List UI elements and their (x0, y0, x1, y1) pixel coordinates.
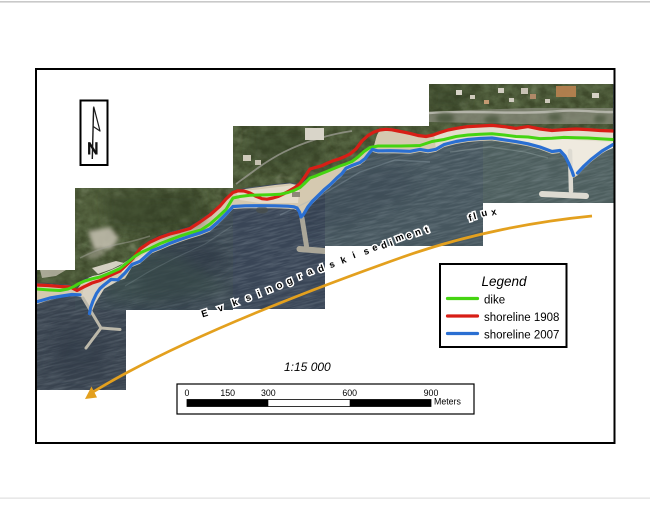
svg-text:1:15 000: 1:15 000 (284, 360, 331, 374)
svg-text:Meters: Meters (434, 397, 461, 407)
svg-text:shoreline 2007: shoreline 2007 (484, 330, 559, 342)
svg-text:dike: dike (484, 295, 505, 307)
svg-text:600: 600 (342, 388, 357, 398)
svg-text:300: 300 (261, 388, 276, 398)
svg-text:0: 0 (185, 388, 190, 398)
svg-text:Legend: Legend (481, 274, 527, 289)
svg-text:shoreline 1908: shoreline 1908 (484, 312, 559, 324)
svg-text:150: 150 (220, 388, 235, 398)
